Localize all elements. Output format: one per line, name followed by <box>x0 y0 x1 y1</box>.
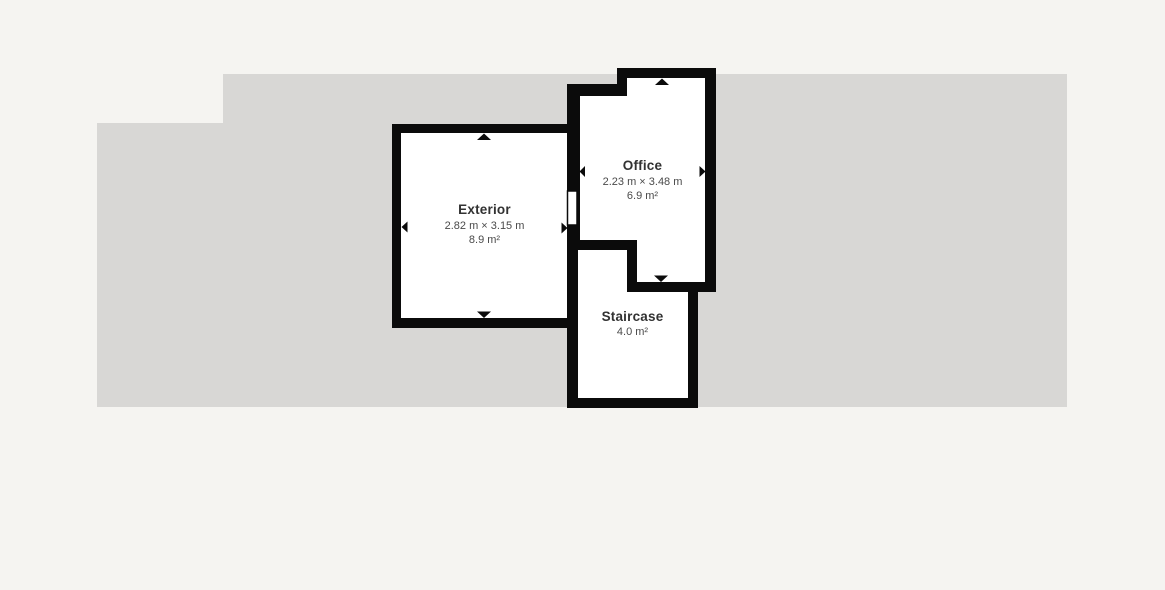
exterior-room-floor[interactable] <box>401 133 567 318</box>
door-opening <box>568 191 578 225</box>
floorplan-svg <box>0 0 1165 590</box>
floorplan-canvas: Exterior 2.82 m × 3.15 m 8.9 m² Office 2… <box>0 0 1165 590</box>
